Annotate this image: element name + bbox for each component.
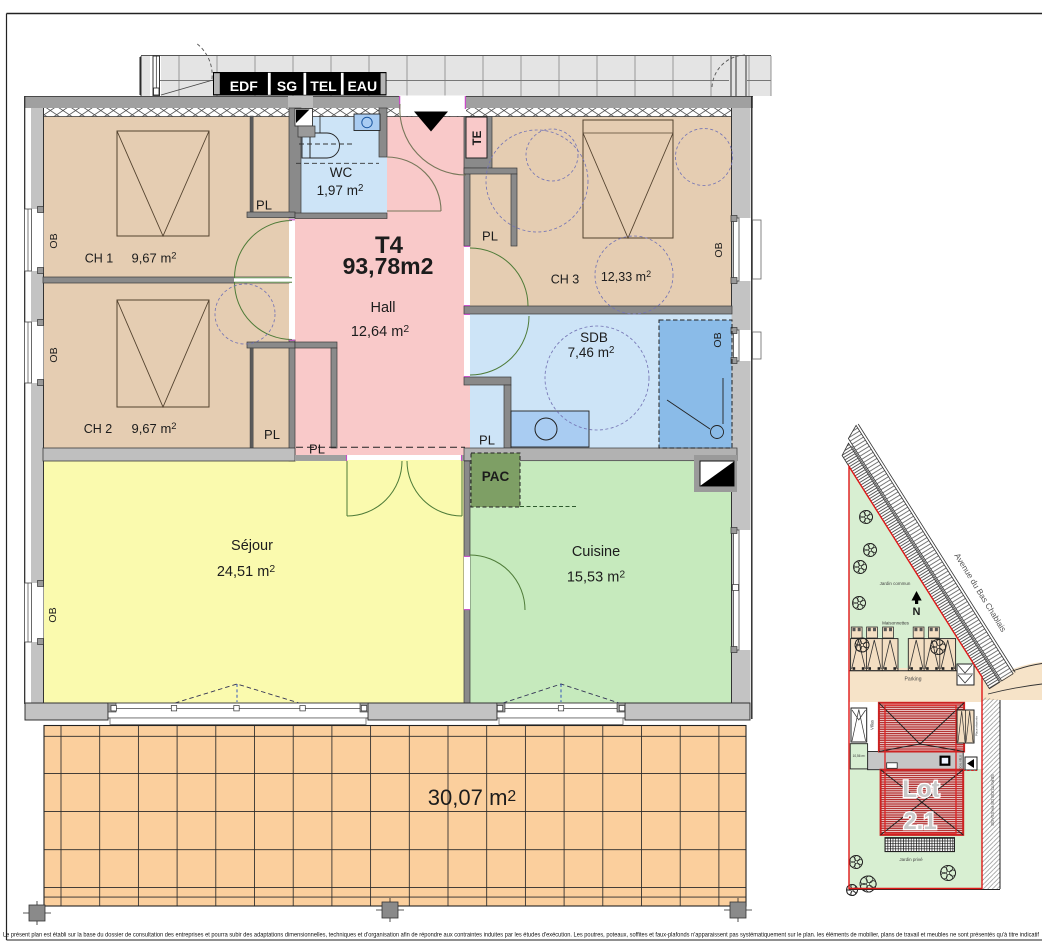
svg-text:OB: OB [47,607,59,622]
svg-text:Place réservée: Place réservée [975,716,979,736]
svg-text:12,33 m2: 12,33 m2 [601,269,651,284]
svg-text:1,97 m2: 1,97 m2 [317,183,364,198]
svg-text:OB: OB [48,233,60,248]
svg-text:N: N [913,606,921,618]
svg-text:TEL: TEL [310,78,337,94]
svg-text:CH 1: CH 1 [85,252,114,266]
svg-text:93,78m2: 93,78m2 [343,253,434,279]
svg-text:Le présent plan est établi sur: Le présent plan est établi sur la base d… [3,932,1039,939]
svg-text:9,67 m2: 9,67 m2 [131,250,176,266]
svg-text:CH 3: CH 3 [551,273,580,287]
svg-text:Maisonnettes: Maisonnettes [882,621,910,626]
svg-text:EDF: EDF [230,78,258,94]
svg-text:Parking: Parking [905,677,922,683]
svg-text:Séjour: Séjour [231,538,273,554]
svg-text:15,53 m2: 15,53 m2 [567,570,625,586]
svg-text:Hall: Hall [371,300,396,316]
svg-text:PL: PL [479,433,495,448]
svg-text:12,64 m2: 12,64 m2 [351,324,409,340]
svg-text:Jardin commun: Jardin commun [880,581,911,586]
svg-text:SDB: SDB [580,330,608,345]
svg-text:PL: PL [309,442,325,457]
svg-text:SERVITUDE DE PASSAGE: SERVITUDE DE PASSAGE [990,774,995,826]
svg-text:OB: OB [713,242,725,257]
svg-text:Cuisine: Cuisine [572,544,620,560]
svg-text:Villas: Villas [870,720,875,730]
svg-text:PL: PL [264,427,280,442]
svg-text:30,07 m2: 30,07 m2 [428,785,516,810]
svg-text:EAU: EAU [348,78,378,94]
svg-text:2.1: 2.1 [903,808,936,835]
svg-text:OB: OB [48,347,60,362]
svg-text:7,46 m2: 7,46 m2 [568,345,615,360]
svg-text:PL: PL [256,198,272,213]
svg-text:Jardin privé: Jardin privé [899,857,923,862]
svg-text:PAC: PAC [482,469,510,484]
svg-text:Lot: Lot [902,776,939,803]
svg-text:SG: SG [277,78,297,94]
svg-text:TE: TE [472,130,484,145]
svg-text:10,56 m²: 10,56 m² [853,754,866,758]
svg-text:WC: WC [330,165,353,180]
svg-text:CH 2: CH 2 [84,422,113,436]
svg-text:OB: OB [712,332,724,347]
svg-text:9,67 m2: 9,67 m2 [131,420,176,436]
svg-text:24,51 m2: 24,51 m2 [217,564,275,580]
svg-text:PL: PL [482,229,498,244]
